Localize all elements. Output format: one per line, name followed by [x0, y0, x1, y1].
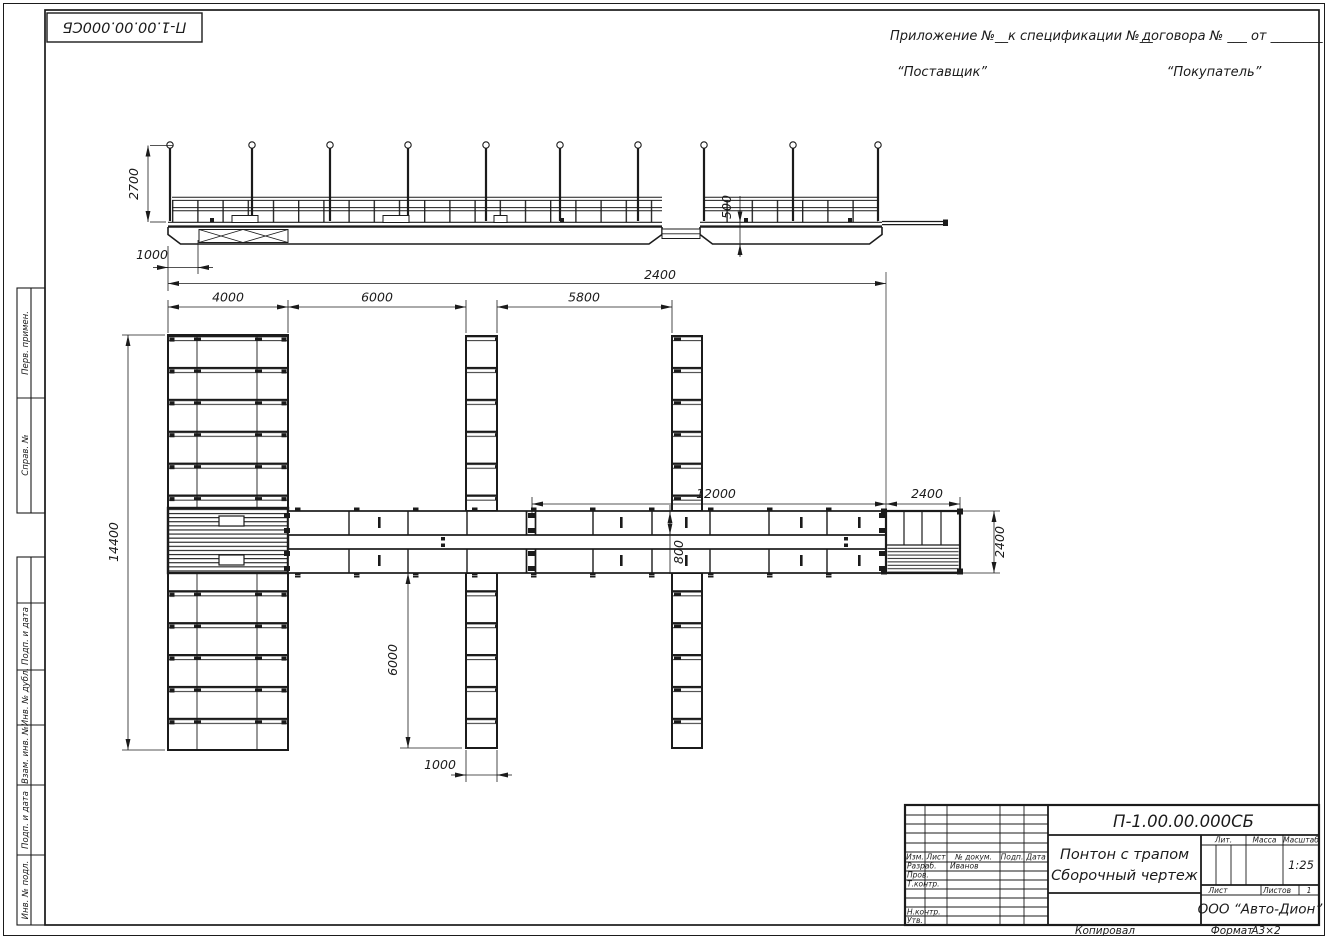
listov-label: Листов: [1262, 886, 1291, 895]
stamp-sprav-no: Справ. №: [21, 434, 31, 476]
corner-doc-number: П-1.00.00.000СБ: [63, 19, 187, 35]
guard-railing: [172, 197, 878, 222]
appendix-text-3: договора № ___ от ________: [1141, 29, 1323, 44]
gangway-treads: [888, 547, 959, 573]
masshtab-label: Масштаб: [1283, 836, 1319, 845]
appendix-text-2: к спецификации №__: [1008, 29, 1153, 44]
razrab-name: Иванов: [950, 862, 979, 871]
ramp-handle-bottom: [219, 555, 244, 565]
ramp-handle-top: [219, 516, 244, 526]
side-view-dim-labels: 2700 1000 2400 500: [126, 168, 734, 282]
drawing-canvas: П-1.00.00.000СБ Приложение №__ к специфи…: [0, 0, 1328, 939]
dim-walkway-length-label: 12000: [696, 486, 736, 501]
end-platform: [881, 509, 963, 575]
drawing-name-line2: Сборочный чертеж: [1051, 868, 1198, 884]
finger-top-middle: [466, 336, 497, 511]
corner-stamp: П-1.00.00.000СБ: [47, 13, 202, 42]
col-izm: Изм.: [906, 853, 924, 862]
finger-top-right: [672, 336, 702, 511]
format-value: А3×2: [1250, 925, 1281, 937]
dim-gap-right-label: 5800: [568, 290, 600, 305]
dim-finger-width-bottom-label: 1000: [424, 757, 456, 772]
appendix-text-1: Приложение №__: [890, 29, 1009, 44]
gangway-plank: [882, 220, 948, 227]
dim-finger-width-top-label: 4000: [212, 290, 244, 305]
row-prov: Пров.: [907, 871, 929, 880]
edge-cleats-bottom: [292, 574, 882, 578]
margin-stamp-labels: Перв. примен. Справ. № Подп. и дата Инв.…: [21, 311, 31, 919]
finger-bottom-right: [672, 573, 702, 748]
deck: [168, 222, 882, 226]
list-label: Лист: [1207, 886, 1228, 895]
massa-label: Масса: [1253, 836, 1277, 845]
stamp-perv-primen: Перв. примен.: [21, 311, 31, 375]
stamp-podp-data-1: Подп. и дата: [21, 607, 31, 665]
dim-platform-width-label: 2400: [992, 526, 1007, 558]
edge-cleats-top: [292, 507, 882, 511]
appendix-header: Приложение №__ к спецификации №__ догово…: [890, 29, 1323, 80]
masshtab-value: 1:25: [1288, 858, 1314, 872]
row-razrab: Разраб.: [907, 862, 936, 871]
finger-bottom-middle: [466, 573, 497, 748]
col-dokum: № докум.: [954, 853, 992, 862]
stamp-inv-podl: Инв. № подл.: [21, 861, 31, 920]
listov-value: 1: [1307, 886, 1312, 895]
stamp-inv-dubl: Инв. № дубл.: [21, 668, 31, 726]
doc-number: П-1.00.00.000СБ: [1113, 812, 1254, 831]
company-name: ООО “Авто-Дион”: [1198, 902, 1324, 918]
col-data: Дата: [1025, 853, 1046, 862]
format-label: Формат: [1211, 925, 1254, 937]
col-list: Лист: [925, 853, 946, 862]
copied-by-label: Копировал: [1075, 925, 1135, 937]
dim-finger-length-bottom-label: 6000: [385, 644, 400, 676]
row-utv: Утв.: [907, 916, 923, 925]
dim-platform-length-label: 2400: [911, 486, 943, 501]
scissor-mechanism: [199, 230, 288, 243]
supplier-label: “Поставщик”: [897, 65, 987, 80]
col-podp: Подп.: [1001, 853, 1024, 862]
drawing-name-line1: Понтон с трапом: [1060, 847, 1189, 863]
stamp-vzam-inv: Взам. инв. №: [21, 726, 31, 784]
drawing-sheet: П-1.00.00.000СБ Приложение №__ к специфи…: [0, 0, 1328, 939]
dim-post-height-label: 2700: [126, 168, 141, 200]
dim-gap-left-label: 6000: [361, 290, 393, 305]
stamp-podp-data-2: Подп. и дата: [21, 791, 31, 849]
dim-walkway-width-label: 800: [671, 540, 686, 564]
row-tkontr: Т.контр.: [907, 880, 940, 889]
side-elevation-view: [167, 142, 948, 244]
dim-overall-width-label: 14400: [106, 522, 121, 562]
dim-left-offset-label: 1000: [136, 247, 168, 262]
walkway: [284, 507, 886, 578]
buyer-label: “Покупатель”: [1167, 65, 1262, 80]
ramp-platform: [168, 508, 288, 573]
lit-label: Лит.: [1214, 836, 1232, 845]
dim-freeboard-label: 500: [719, 195, 734, 219]
dim-pontoon-length-label: 2400: [644, 267, 676, 282]
plan-view: [168, 335, 963, 750]
